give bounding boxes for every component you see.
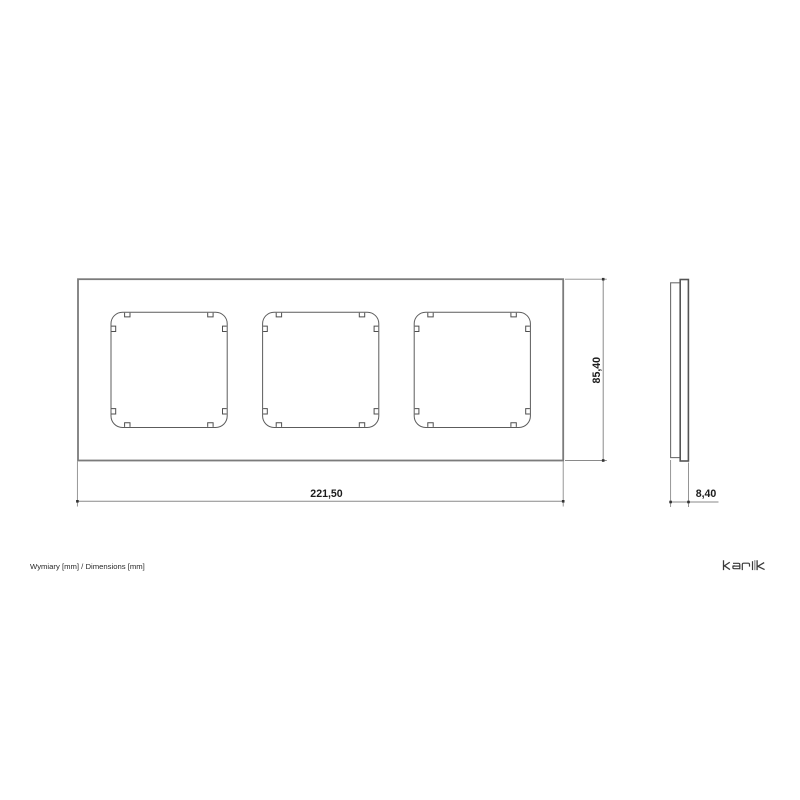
svg-text:8,40: 8,40: [696, 488, 717, 500]
svg-text:221,50: 221,50: [310, 488, 343, 500]
svg-text:Wymiary [mm] / Dimensions [mm]: Wymiary [mm] / Dimensions [mm]: [30, 562, 145, 571]
svg-text:85,40: 85,40: [591, 357, 603, 384]
